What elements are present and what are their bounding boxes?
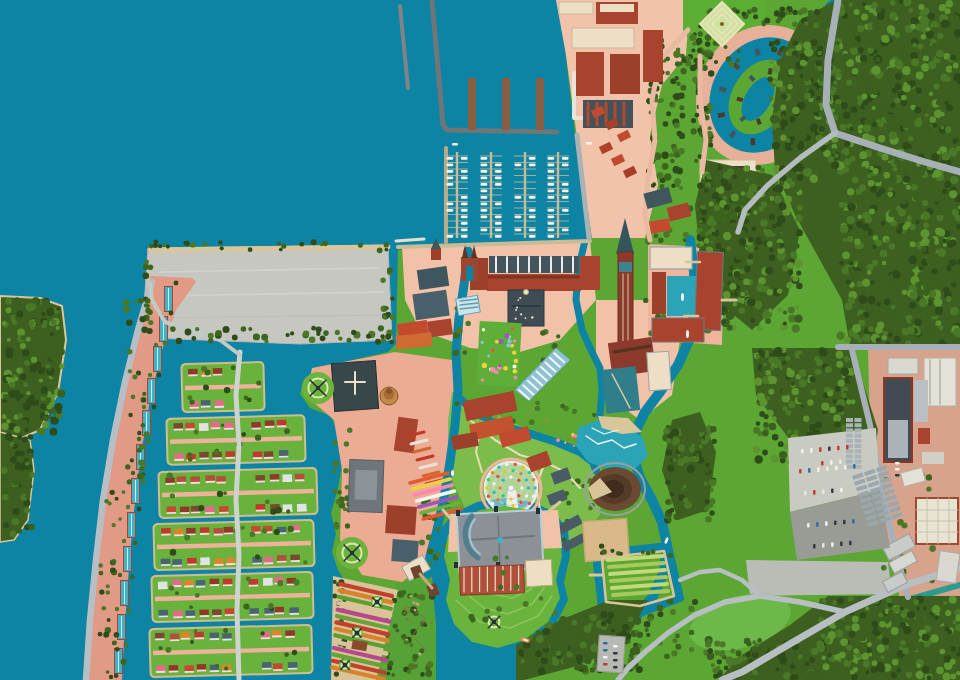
tree-or-dot (943, 287, 949, 293)
tree-or-dot (834, 47, 840, 53)
tree-or-dot (859, 151, 867, 159)
tree-or-dot (907, 617, 916, 626)
tree-or-dot (744, 266, 750, 272)
tree-or-dot (918, 169, 925, 176)
tree-or-dot (902, 66, 911, 75)
tree-or-dot (380, 334, 384, 338)
tree-or-dot (28, 524, 35, 531)
tree-or-dot (754, 246, 758, 250)
tree-or-dot (47, 404, 52, 409)
tree-or-dot (846, 645, 852, 651)
car (828, 447, 830, 452)
tree-or-dot (769, 41, 775, 47)
house-wall (225, 614, 235, 616)
tree-or-dot (158, 244, 162, 248)
tree-or-dot (954, 247, 958, 251)
tree-or-dot (884, 172, 891, 179)
tree-or-dot (770, 675, 774, 679)
house-wall (261, 637, 271, 639)
tree-or-dot (788, 270, 793, 275)
tree-or-dot (303, 330, 309, 336)
tree-or-dot (852, 616, 859, 623)
tree-or-dot (721, 306, 727, 312)
tree-or-dot (730, 213, 737, 220)
car (613, 659, 618, 661)
car (834, 521, 836, 526)
tree-or-dot (513, 369, 518, 374)
tree-or-dot (916, 606, 920, 610)
tree-or-dot (692, 77, 698, 83)
tree-or-dot (115, 647, 120, 652)
tree-or-dot (704, 52, 710, 58)
tree-or-dot (747, 9, 752, 14)
tree-or-dot (633, 617, 641, 625)
tree-or-dot (690, 65, 696, 71)
tree-or-dot (946, 22, 951, 27)
tree-or-dot (847, 654, 854, 661)
windmill-bastion (302, 372, 334, 404)
tree-or-dot (742, 11, 747, 16)
tree-or-dot (727, 258, 733, 264)
house-wall (156, 671, 166, 673)
tree-or-dot (955, 114, 960, 119)
tree-or-dot (403, 607, 406, 610)
tree-or-dot (716, 243, 722, 249)
hotel-brick-wing (610, 54, 640, 94)
tree-or-dot (929, 178, 935, 184)
moored-boat (548, 235, 555, 238)
moored-boat (548, 229, 555, 232)
tree-or-dot (16, 310, 23, 317)
tree (137, 437, 141, 441)
tree-or-dot (564, 442, 566, 444)
ferris-gondola (497, 466, 500, 469)
tree-or-dot (695, 453, 699, 457)
tree-or-dot (17, 413, 23, 419)
tree-or-dot (861, 14, 868, 21)
tree-or-dot (860, 612, 866, 618)
tree-or-dot (779, 181, 784, 186)
tree-or-dot (868, 326, 874, 332)
tree-or-dot (626, 639, 630, 643)
tree-or-dot (141, 423, 146, 428)
tree-or-dot (780, 72, 786, 78)
solar-panel (855, 418, 862, 422)
tree-or-dot (59, 363, 64, 368)
tree-or-dot (28, 484, 32, 488)
tree-or-dot (803, 41, 811, 49)
tree-or-dot (415, 602, 418, 605)
tree-or-dot (57, 390, 65, 398)
tree-or-dot (390, 296, 394, 300)
tree-or-dot (926, 258, 932, 264)
tree-or-dot (702, 65, 708, 71)
tree-or-dot (871, 667, 877, 673)
tree-or-dot (658, 238, 664, 244)
tree (115, 607, 119, 611)
tree-or-dot (769, 214, 775, 220)
tree-or-dot (107, 618, 111, 622)
tree-or-dot (769, 59, 774, 64)
tree-or-dot (628, 617, 633, 622)
tree-or-dot (876, 302, 881, 307)
tree-or-dot (917, 664, 921, 668)
tree-or-dot (842, 54, 850, 62)
tree-or-dot (57, 339, 61, 343)
town-block-east (580, 256, 600, 290)
tree-or-dot (882, 335, 888, 341)
tree-or-dot (917, 44, 923, 50)
warehouse (922, 452, 944, 464)
tree-or-dot (676, 168, 683, 175)
tree-or-dot (772, 434, 779, 441)
tree-or-dot (332, 594, 337, 599)
tree-or-dot (872, 88, 878, 94)
tree-or-dot (937, 150, 941, 154)
tree-or-dot (934, 196, 940, 202)
tree-or-dot (714, 60, 718, 64)
tree-or-dot (125, 464, 130, 469)
tree-or-dot (736, 9, 740, 13)
tree-or-dot (787, 262, 794, 269)
tree-or-dot (570, 648, 575, 653)
tree-or-dot (862, 2, 867, 7)
house-wall (174, 459, 184, 461)
solar-panel (846, 439, 853, 443)
tree-or-dot (908, 8, 913, 13)
tree-or-dot (689, 447, 695, 453)
tree-or-dot (839, 261, 843, 265)
tree-or-dot (902, 169, 908, 175)
tree-or-dot (743, 279, 750, 286)
tree-or-dot (836, 405, 843, 412)
tree-or-dot (878, 285, 883, 290)
tree-or-dot (137, 431, 141, 435)
tree-or-dot (6, 351, 14, 359)
tree-or-dot (529, 407, 534, 412)
tree-or-dot (121, 659, 127, 665)
tree (118, 573, 122, 577)
tree-or-dot (756, 284, 765, 293)
tree-or-dot (132, 374, 137, 379)
glass-market-hall (489, 256, 579, 273)
tree-or-dot (758, 431, 763, 436)
tree-or-dot (956, 282, 960, 286)
tree-or-dot (789, 172, 793, 176)
tree-or-dot (671, 184, 675, 188)
tree-or-dot (840, 124, 847, 131)
factory-roof-panel (888, 420, 908, 458)
car (603, 649, 608, 651)
tree-or-dot (711, 166, 716, 171)
tree-or-dot (928, 617, 935, 624)
tree-or-dot (669, 153, 673, 157)
tree-or-dot (825, 366, 832, 373)
tree-or-dot (19, 451, 24, 456)
tree-or-dot (863, 124, 871, 132)
tree-or-dot (844, 87, 852, 95)
house-wall (252, 562, 262, 564)
tree-or-dot (788, 401, 795, 408)
tree-or-dot (419, 653, 421, 655)
palace-turret (494, 506, 498, 512)
tree-or-dot (503, 366, 508, 371)
tree-or-dot (952, 620, 957, 625)
tree-or-dot (919, 298, 928, 307)
car (613, 652, 618, 654)
car (613, 645, 618, 647)
tree-or-dot (481, 378, 484, 381)
palace-turret (536, 508, 540, 514)
tree-or-dot (334, 672, 339, 677)
tree-or-dot (781, 127, 785, 131)
tree-or-dot (203, 242, 208, 247)
tree-or-dot (726, 56, 732, 62)
solar-panel (855, 449, 862, 453)
tree-or-dot (895, 32, 901, 38)
tree-or-dot (949, 259, 956, 266)
tree-or-dot (952, 209, 959, 216)
house-wall (196, 586, 206, 588)
ferris-gondola (532, 495, 535, 498)
house-wall (190, 407, 200, 409)
tree-or-dot (512, 350, 516, 354)
tree-or-dot (498, 585, 503, 590)
tree-or-dot (176, 338, 182, 344)
tree-or-dot (29, 472, 35, 478)
map-viewport[interactable] (0, 0, 960, 680)
tree-or-dot (675, 644, 681, 650)
tree-or-dot (299, 242, 304, 247)
tree-or-dot (875, 57, 880, 62)
house-wall (295, 479, 305, 481)
tree-or-dot (766, 396, 770, 400)
tree-or-dot (590, 667, 595, 672)
tree-or-dot (704, 238, 709, 243)
tree-or-dot (951, 14, 960, 23)
tree-or-dot (882, 638, 889, 645)
tree-or-dot (14, 519, 19, 524)
tree-or-dot (834, 421, 840, 427)
car (830, 460, 832, 465)
tree-or-dot (765, 370, 771, 376)
tree-or-dot (814, 672, 822, 680)
solar-panel (855, 428, 862, 432)
tree-or-dot (937, 33, 943, 39)
tree-or-dot (883, 195, 888, 200)
tree-or-dot (523, 601, 529, 607)
tree-or-dot (891, 176, 897, 182)
tree-or-dot (779, 11, 785, 17)
tree-or-dot (347, 428, 352, 433)
tree-or-dot (947, 241, 953, 247)
tree-or-dot (897, 519, 904, 526)
tree-or-dot (540, 330, 546, 336)
tree-or-dot (934, 615, 939, 620)
tree-or-dot (485, 609, 490, 614)
tree-or-dot (817, 66, 822, 71)
moored-boat (481, 203, 488, 206)
tree-or-dot (673, 499, 680, 506)
park-map-canvas[interactable] (0, 0, 960, 680)
tree-or-dot (818, 126, 824, 132)
palace-east-wing (525, 559, 552, 586)
tree-or-dot (650, 549, 655, 554)
tree-or-dot (248, 327, 252, 331)
moored-boat (495, 183, 502, 186)
tree-or-dot (748, 237, 754, 243)
moored-boat (481, 229, 488, 232)
tree-or-dot (7, 338, 11, 342)
tree-or-dot (761, 173, 766, 178)
tree-or-dot (332, 469, 337, 474)
tree-or-dot (785, 662, 790, 667)
house-wall (226, 457, 236, 459)
tree-or-dot (760, 167, 765, 172)
residential-row-1 (180, 361, 265, 413)
tree-or-dot (906, 671, 913, 678)
tree-or-dot (926, 126, 935, 135)
tree-or-dot (882, 104, 887, 109)
tree-or-dot (679, 105, 684, 110)
tree-or-dot (888, 333, 893, 338)
moored-boat (461, 170, 468, 173)
tree-or-dot (857, 25, 864, 32)
moored-boat (461, 235, 468, 238)
tree-or-dot (98, 632, 103, 637)
tree-or-dot (862, 279, 870, 287)
tree-or-dot (599, 543, 604, 548)
moored-boat (495, 177, 502, 180)
tree-or-dot (912, 43, 917, 48)
ferris-gondola (492, 482, 495, 485)
house-wall (158, 587, 168, 589)
tree-or-dot (106, 670, 110, 674)
house-wall (290, 560, 300, 562)
solar-panel (846, 454, 853, 458)
tree-or-dot (31, 357, 37, 363)
tree-or-dot (600, 611, 607, 618)
tree-or-dot (945, 610, 951, 616)
moored-boat (481, 157, 488, 160)
tree-or-dot (745, 652, 750, 657)
tree-or-dot (419, 540, 425, 546)
car (813, 544, 815, 549)
house-wall (264, 562, 274, 564)
tree-or-dot (714, 641, 720, 647)
tree-or-dot (817, 45, 823, 51)
moored-boat (562, 157, 569, 160)
tree-or-dot (909, 302, 916, 309)
tree-or-dot (799, 369, 807, 377)
tree-or-dot (873, 49, 877, 53)
tree-or-dot (727, 247, 732, 252)
tree-or-dot (710, 242, 714, 246)
hotel-europe-canal-boat (681, 293, 684, 301)
tree-or-dot (692, 41, 697, 46)
tree-or-dot (695, 113, 700, 118)
moored-boat (495, 170, 502, 173)
tree-or-dot (858, 47, 864, 53)
tree-or-dot (153, 240, 158, 245)
tree-or-dot (781, 94, 787, 100)
tree-or-dot (923, 55, 929, 61)
house-wall (199, 457, 209, 459)
tree-or-dot (46, 308, 54, 316)
house-wall (211, 427, 221, 429)
tree-or-dot (947, 267, 952, 272)
tree-or-dot (807, 399, 813, 405)
tree-or-dot (14, 297, 21, 304)
house-wall (210, 584, 220, 586)
tree-or-dot (770, 115, 779, 124)
tree-or-dot (544, 417, 550, 423)
tree-or-dot (816, 359, 823, 366)
tree-or-dot (208, 338, 213, 343)
tree-or-dot (704, 506, 710, 512)
tree-or-dot (814, 9, 820, 15)
tree-or-dot (951, 646, 956, 651)
warehouse (936, 551, 960, 583)
tree-or-dot (378, 325, 384, 331)
car (807, 523, 809, 528)
tree-or-dot (777, 288, 782, 293)
tree-or-dot (790, 664, 795, 669)
tree-or-dot (803, 416, 809, 422)
tree-or-dot (835, 104, 842, 111)
tree-or-dot (677, 458, 685, 466)
moored-boat (562, 209, 569, 212)
ferris-gondola (521, 466, 524, 469)
tree-or-dot (386, 672, 390, 676)
tree-or-dot (734, 271, 741, 278)
ferris-gondola (503, 470, 506, 473)
tree-or-dot (923, 606, 927, 610)
tree-or-dot (871, 621, 877, 627)
tree-or-dot (876, 7, 882, 13)
tree-or-dot (16, 500, 22, 506)
tree-or-dot (710, 426, 717, 433)
tree-or-dot (893, 618, 899, 624)
tree-or-dot (515, 309, 517, 311)
tree-or-dot (805, 662, 810, 667)
ferris-hub (508, 485, 514, 491)
tree-or-dot (726, 311, 735, 320)
tree-or-dot (723, 268, 730, 275)
tree-or-dot (658, 611, 664, 617)
tree-or-dot (858, 129, 863, 134)
tree-or-dot (406, 638, 408, 640)
tree-or-dot (946, 647, 951, 652)
tree-or-dot (898, 209, 906, 217)
windmill-tulip (339, 659, 351, 671)
tree-or-dot (44, 354, 49, 359)
tree-or-dot (25, 465, 30, 470)
tree-or-dot (142, 392, 146, 396)
tree-or-dot (339, 497, 345, 503)
tree-or-dot (22, 419, 28, 425)
tree-or-dot (610, 549, 614, 553)
tree-or-dot (845, 68, 850, 73)
tree-or-dot (689, 630, 694, 635)
house-wall (283, 480, 293, 482)
tree-or-dot (827, 391, 833, 397)
tree-or-dot (723, 232, 731, 240)
tree-or-dot (707, 653, 715, 661)
tree (131, 471, 135, 475)
tree-or-dot (892, 270, 900, 278)
tree-or-dot (821, 403, 829, 411)
